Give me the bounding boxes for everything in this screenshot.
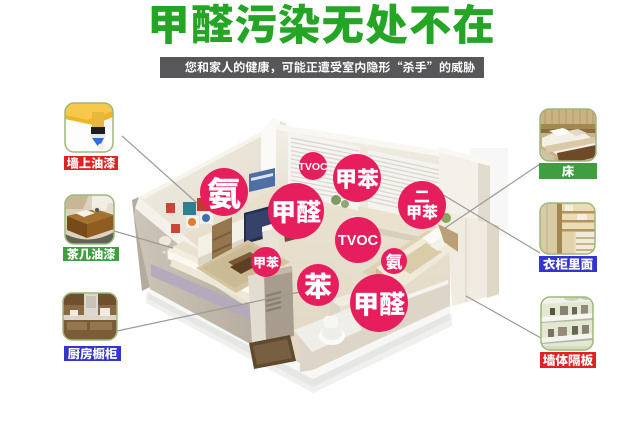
svg-text:TVOC: TVOC [298,161,328,173]
svg-text:TVOC: TVOC [338,233,379,249]
